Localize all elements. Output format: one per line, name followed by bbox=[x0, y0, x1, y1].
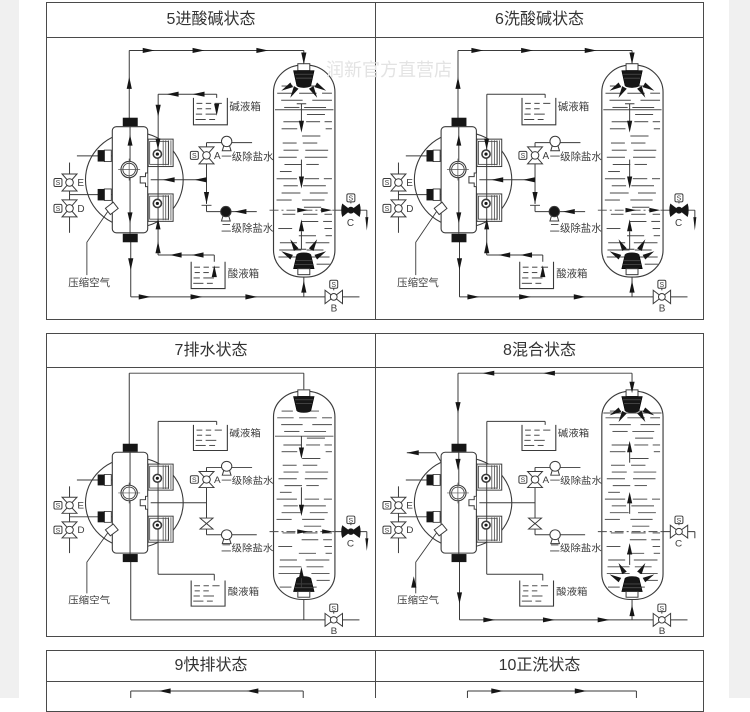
svg-text:E: E bbox=[77, 178, 84, 189]
svg-text:S: S bbox=[385, 180, 390, 187]
svg-text:酸液箱: 酸液箱 bbox=[228, 585, 259, 598]
svg-text:S: S bbox=[385, 206, 390, 213]
svg-text:B: B bbox=[659, 304, 666, 315]
svg-text:A: A bbox=[214, 151, 221, 162]
svg-text:S: S bbox=[349, 517, 354, 524]
svg-text:S: S bbox=[521, 153, 526, 160]
svg-text:B: B bbox=[331, 304, 338, 315]
svg-text:D: D bbox=[406, 525, 413, 536]
svg-text:碱液箱: 碱液箱 bbox=[229, 427, 260, 440]
svg-text:C: C bbox=[347, 539, 354, 550]
svg-text:碱液箱: 碱液箱 bbox=[558, 100, 589, 113]
svg-text:压缩空气: 压缩空气 bbox=[68, 276, 110, 289]
svg-text:S: S bbox=[677, 195, 682, 202]
svg-text:S: S bbox=[349, 195, 354, 202]
svg-text:S: S bbox=[677, 517, 682, 524]
svg-text:S: S bbox=[56, 206, 61, 213]
svg-text:D: D bbox=[406, 204, 413, 215]
svg-text:二级除盐水: 二级除盐水 bbox=[221, 542, 273, 555]
svg-text:压缩空气: 压缩空气 bbox=[397, 594, 439, 607]
svg-text:S: S bbox=[660, 282, 665, 289]
svg-text:酸液箱: 酸液箱 bbox=[556, 585, 587, 598]
svg-text:A: A bbox=[542, 151, 549, 162]
svg-text:酸液箱: 酸液箱 bbox=[228, 267, 259, 280]
svg-text:D: D bbox=[77, 204, 84, 215]
svg-text:S: S bbox=[192, 153, 197, 160]
svg-text:S: S bbox=[331, 282, 336, 289]
svg-text:碱液箱: 碱液箱 bbox=[558, 427, 589, 440]
svg-text:一级除盐水: 一级除盐水 bbox=[550, 474, 602, 487]
svg-text:S: S bbox=[192, 477, 197, 484]
svg-text:二级除盐水: 二级除盐水 bbox=[221, 221, 274, 234]
svg-text:二级除盐水: 二级除盐水 bbox=[550, 221, 603, 234]
svg-text:一级除盐水: 一级除盐水 bbox=[221, 150, 274, 163]
svg-text:B: B bbox=[659, 626, 666, 635]
svg-text:B: B bbox=[331, 626, 338, 635]
svg-text:S: S bbox=[56, 527, 61, 534]
svg-text:A: A bbox=[542, 475, 549, 486]
svg-text:酸液箱: 酸液箱 bbox=[556, 267, 587, 280]
svg-text:一级除盐水: 一级除盐水 bbox=[550, 150, 603, 163]
svg-text:E: E bbox=[406, 178, 413, 189]
svg-text:S: S bbox=[660, 605, 665, 612]
svg-text:压缩空气: 压缩空气 bbox=[68, 594, 110, 607]
svg-text:D: D bbox=[77, 525, 84, 536]
svg-text:一级除盐水: 一级除盐水 bbox=[221, 474, 273, 487]
svg-text:C: C bbox=[675, 539, 682, 550]
svg-text:S: S bbox=[385, 527, 390, 534]
svg-text:S: S bbox=[331, 605, 336, 612]
svg-text:二级除盐水: 二级除盐水 bbox=[550, 542, 602, 555]
svg-text:S: S bbox=[56, 503, 61, 510]
svg-text:E: E bbox=[406, 501, 413, 512]
svg-text:S: S bbox=[56, 180, 61, 187]
svg-text:A: A bbox=[214, 475, 221, 486]
svg-text:C: C bbox=[675, 218, 682, 229]
svg-text:S: S bbox=[521, 477, 526, 484]
svg-text:E: E bbox=[77, 501, 84, 512]
svg-text:C: C bbox=[347, 218, 354, 229]
svg-text:碱液箱: 碱液箱 bbox=[229, 100, 260, 113]
svg-text:S: S bbox=[385, 503, 390, 510]
svg-text:压缩空气: 压缩空气 bbox=[397, 276, 439, 289]
